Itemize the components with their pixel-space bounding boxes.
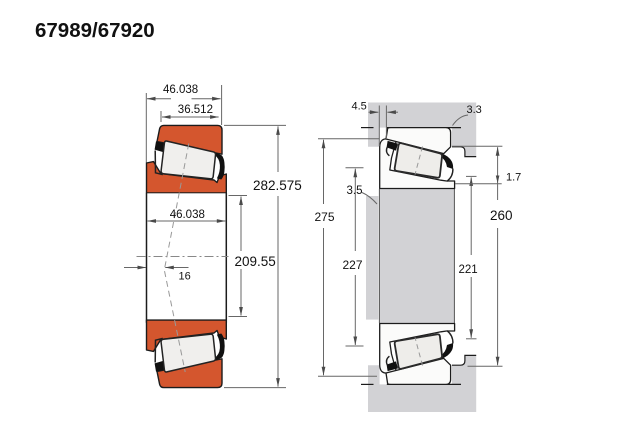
svg-text:4.5: 4.5 — [352, 101, 367, 113]
svg-text:275: 275 — [315, 210, 335, 224]
svg-text:67989/67920: 67989/67920 — [35, 19, 155, 42]
svg-text:3.5: 3.5 — [347, 185, 363, 197]
svg-text:282.575: 282.575 — [253, 178, 302, 193]
svg-text:36.512: 36.512 — [178, 104, 213, 116]
svg-text:16: 16 — [179, 271, 191, 283]
svg-text:227: 227 — [343, 258, 363, 272]
svg-text:1.7: 1.7 — [506, 172, 521, 184]
svg-text:221: 221 — [459, 264, 478, 276]
svg-text:260: 260 — [490, 208, 513, 223]
svg-text:209.55: 209.55 — [235, 254, 276, 269]
svg-text:46.038: 46.038 — [163, 84, 198, 96]
svg-text:46.038: 46.038 — [170, 209, 205, 221]
svg-text:3.3: 3.3 — [467, 104, 482, 116]
